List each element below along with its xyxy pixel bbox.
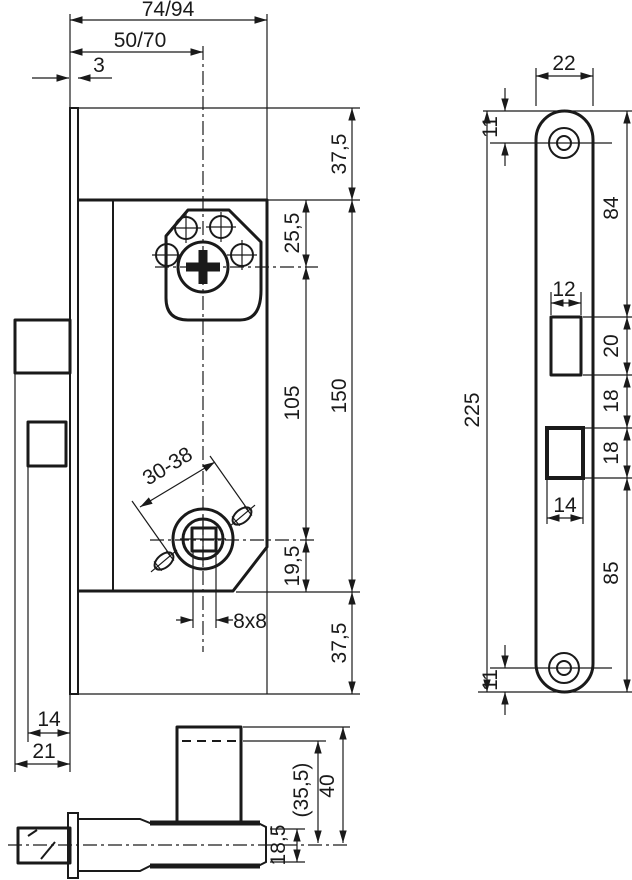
dim-deadbolt-cutout-height: 18 <box>600 441 623 464</box>
dim-cylinder-to-centre: 25,5 <box>281 213 304 254</box>
faceplate-edge <box>70 108 78 694</box>
dim-latch-cutout-width: 12 <box>552 278 575 301</box>
extension-lines <box>15 14 360 772</box>
screw-icon <box>171 213 201 243</box>
extension-lines <box>478 68 632 692</box>
dim-backset: 50/70 <box>114 29 167 52</box>
deadbolt-cutout <box>547 428 583 478</box>
dim-faceplate-thickness: 3 <box>93 54 105 77</box>
deadbolt <box>28 422 66 466</box>
dim-follower-square: 8x8 <box>233 610 267 633</box>
faceplate-front <box>536 111 593 692</box>
dim-top-screw-offset: 11 <box>479 116 502 138</box>
spindle-follower <box>173 509 233 569</box>
latch-bolt <box>15 320 70 373</box>
dim-cutout-gap: 18 <box>600 389 623 412</box>
technical-drawing: 74/94 50/70 3 37,5 25,5 105 19,5 150 37,… <box>0 0 632 880</box>
screw-icon <box>227 240 257 270</box>
dim-latch-cutout-height: 20 <box>600 334 623 357</box>
dim-top-section: 84 <box>600 196 623 220</box>
dim-top-margin: 37,5 <box>328 134 351 175</box>
dim-bottom-margin: 37,5 <box>328 623 351 664</box>
dim-deadbolt-cutout-width: 14 <box>553 494 577 517</box>
front-view: 74/94 50/70 3 37,5 25,5 105 19,5 150 37,… <box>15 0 360 772</box>
dim-centre-distance: 105 <box>281 385 304 420</box>
dim-bottom-screw-offset: 11 <box>479 669 502 691</box>
screw-icon <box>206 212 236 242</box>
dim-latch-throw: 21 <box>32 740 55 763</box>
dim-overall-depth: 74/94 <box>142 0 195 21</box>
dim-follower-to-bottom: 19,5 <box>281 546 304 587</box>
dim-total-height: 225 <box>461 392 484 427</box>
dim-bottom-section: 85 <box>600 561 623 584</box>
bottom-view: 18,5 (35,5) 40 <box>8 727 350 878</box>
dim-case-height: 150 <box>328 378 351 413</box>
dim-case-thickness: 18,5 <box>267 825 290 866</box>
faceplate-view: 22 11 225 84 20 18 18 85 11 12 14 <box>461 52 632 715</box>
dim-adjustable-range: 30-38 <box>139 443 197 490</box>
dim-plate-width: 22 <box>552 52 575 75</box>
dim-hub-height: 40 <box>316 774 339 797</box>
dim-deadbolt-throw: 14 <box>37 708 61 731</box>
latch-cutout <box>551 317 581 375</box>
dim-hub-height-ref: (35,5) <box>290 763 313 818</box>
